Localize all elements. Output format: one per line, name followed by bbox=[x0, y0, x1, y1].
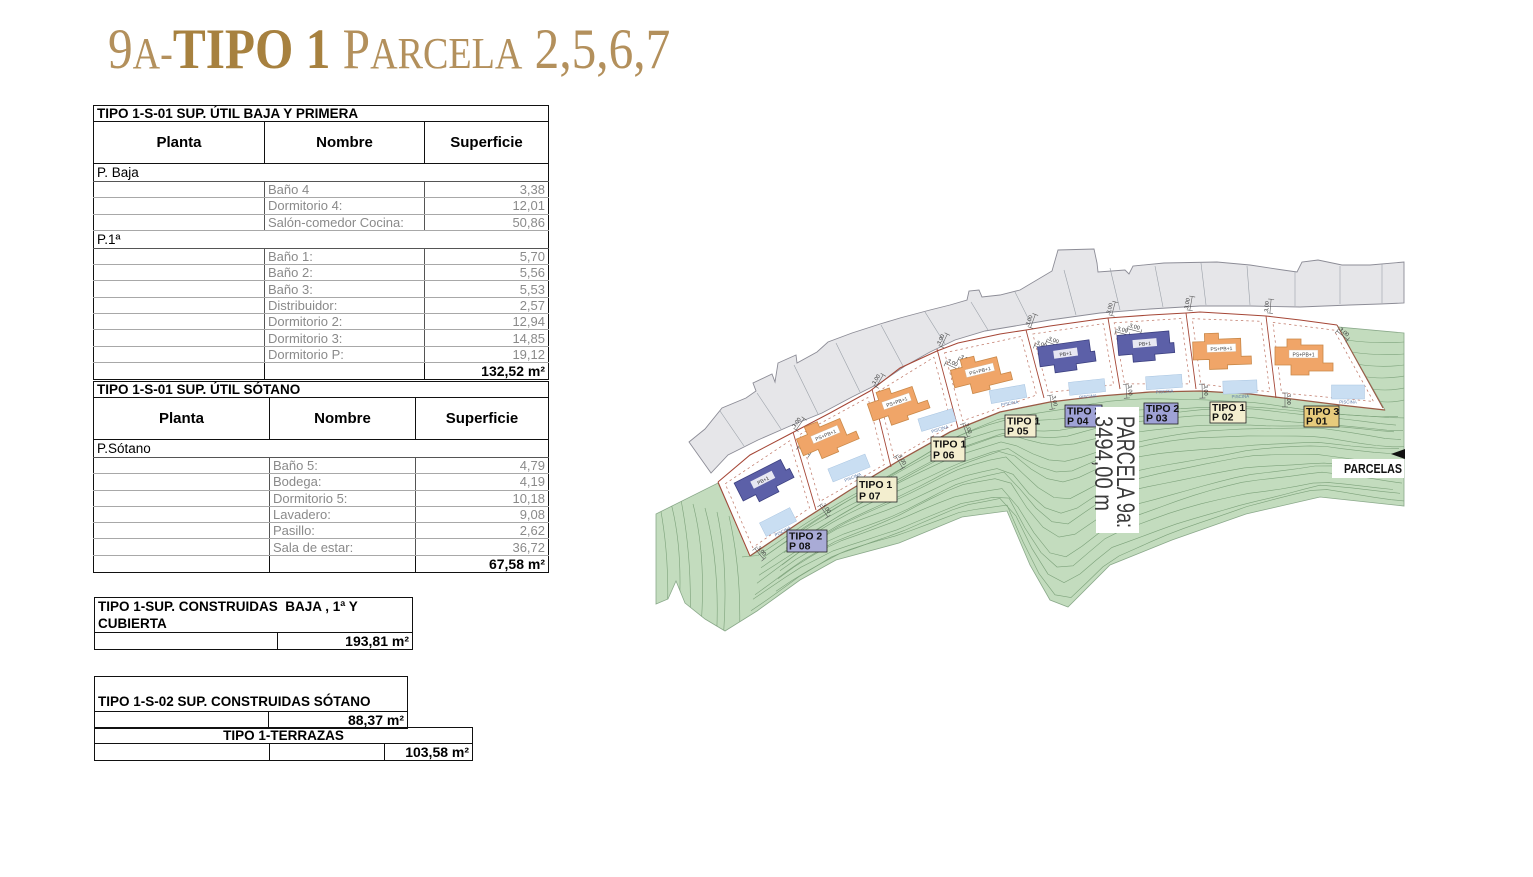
svg-text:PS+PB+1: PS+PB+1 bbox=[1293, 352, 1315, 358]
svg-text:PARCELAS: PARCELAS bbox=[1344, 461, 1402, 476]
svg-text:3,00: 3,00 bbox=[1184, 298, 1192, 310]
svg-text:P 06: P 06 bbox=[933, 450, 955, 462]
svg-text:P 05: P 05 bbox=[1007, 426, 1029, 438]
svg-text:TIPO 1: TIPO 1 bbox=[859, 479, 892, 491]
svg-text:P 01: P 01 bbox=[1306, 416, 1328, 428]
svg-text:3,00: 3,00 bbox=[1126, 385, 1133, 396]
svg-text:PS+PB+1: PS+PB+1 bbox=[1210, 346, 1232, 353]
svg-text:PISCINA: PISCINA bbox=[1231, 394, 1249, 400]
svg-text:3494,00 m: 3494,00 m bbox=[1089, 416, 1117, 511]
svg-text:P 08: P 08 bbox=[789, 541, 811, 553]
svg-text:3,00: 3,00 bbox=[1202, 385, 1208, 396]
svg-text:PB+1: PB+1 bbox=[1138, 341, 1151, 348]
svg-text:P 03: P 03 bbox=[1146, 413, 1168, 425]
svg-text:3,00: 3,00 bbox=[1285, 394, 1291, 405]
svg-text:P 07: P 07 bbox=[859, 491, 881, 503]
svg-text:PISCINA: PISCINA bbox=[1339, 400, 1357, 405]
svg-text:P 02: P 02 bbox=[1212, 412, 1234, 424]
svg-text:P 04: P 04 bbox=[1067, 416, 1089, 428]
